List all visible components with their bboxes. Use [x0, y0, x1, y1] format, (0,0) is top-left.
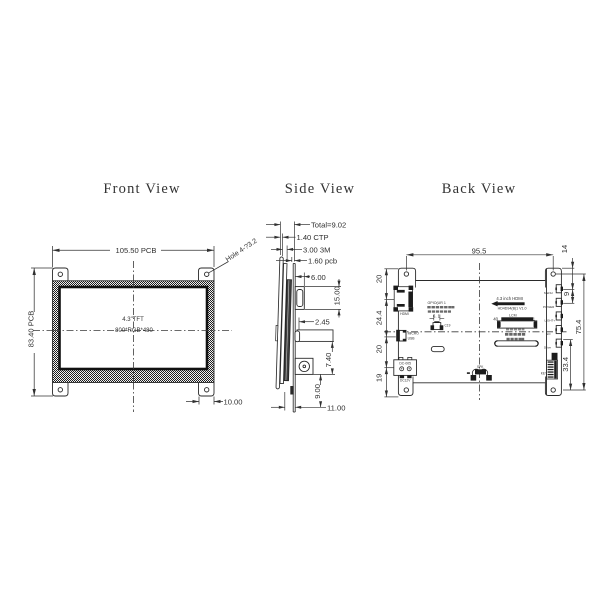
svg-text:MENU: MENU — [544, 291, 553, 295]
svg-text:83.40 PCB: 83.40 PCB — [27, 311, 36, 348]
svg-text:Hole 4-?3.2: Hole 4-?3.2 — [225, 238, 259, 264]
svg-text:105.50 PCB: 105.50 PCB — [116, 246, 157, 255]
svg-text:4.3 inch HDMI: 4.3 inch HDMI — [496, 296, 523, 301]
svg-text:LIGHT+: LIGHT+ — [545, 318, 556, 322]
svg-text:9: 9 — [562, 292, 571, 296]
svg-text:6.00: 6.00 — [311, 273, 326, 282]
svg-text:C19: C19 — [445, 323, 451, 327]
svg-text:GPIO(UR 1: GPIO(UR 1 — [428, 301, 446, 305]
svg-text:7.40: 7.40 — [324, 353, 333, 368]
svg-text:Back View: Back View — [442, 181, 517, 197]
svg-text:1.40 CTP: 1.40 CTP — [297, 233, 329, 242]
svg-text:14: 14 — [560, 245, 569, 253]
svg-text:POWER: POWER — [543, 305, 555, 309]
svg-text:19: 19 — [375, 374, 384, 382]
svg-text:LCM: LCM — [509, 313, 517, 317]
svg-text:2.45: 2.45 — [315, 318, 330, 327]
svg-text:HDMI: HDMI — [400, 312, 409, 316]
svg-text:4.3"TFT: 4.3"TFT — [122, 317, 144, 323]
svg-text:20: 20 — [375, 345, 384, 353]
svg-text:95.5: 95.5 — [472, 246, 487, 255]
svg-text:75.4: 75.4 — [574, 320, 583, 335]
svg-text:6. 1: 6. 1 — [433, 314, 441, 319]
svg-text:DC12V: DC12V — [400, 378, 411, 382]
svg-text:15.00: 15.00 — [332, 286, 341, 305]
svg-text:1.60 pcb: 1.60 pcb — [308, 257, 337, 266]
svg-text:11.00: 11.00 — [327, 403, 345, 412]
svg-text:Side View: Side View — [285, 181, 355, 197]
svg-text:KEY: KEY — [541, 372, 548, 376]
svg-text:Drive: Drive — [544, 346, 551, 350]
svg-text:10.00: 10.00 — [224, 397, 243, 406]
svg-text:DC-005: DC-005 — [399, 361, 411, 365]
svg-text:MICRO: MICRO — [408, 332, 420, 336]
svg-text:24.4: 24.4 — [375, 311, 384, 326]
svg-text:33.4: 33.4 — [561, 357, 570, 372]
svg-text:20: 20 — [375, 275, 384, 283]
svg-text:Front View: Front View — [103, 181, 180, 197]
svg-text:3.00 3M: 3.00 3M — [303, 245, 330, 254]
svg-text:800*RGB*480: 800*RGB*480 — [115, 328, 153, 334]
svg-text:USB: USB — [408, 336, 416, 340]
svg-text:9.00: 9.00 — [313, 384, 322, 399]
svg-text:NO: NO — [546, 332, 551, 336]
svg-text:Total=9.02: Total=9.02 — [311, 221, 346, 230]
svg-text:HD4D94(B)1 V1.0: HD4D94(B)1 V1.0 — [498, 307, 527, 311]
svg-text:SPK: SPK — [477, 365, 484, 369]
